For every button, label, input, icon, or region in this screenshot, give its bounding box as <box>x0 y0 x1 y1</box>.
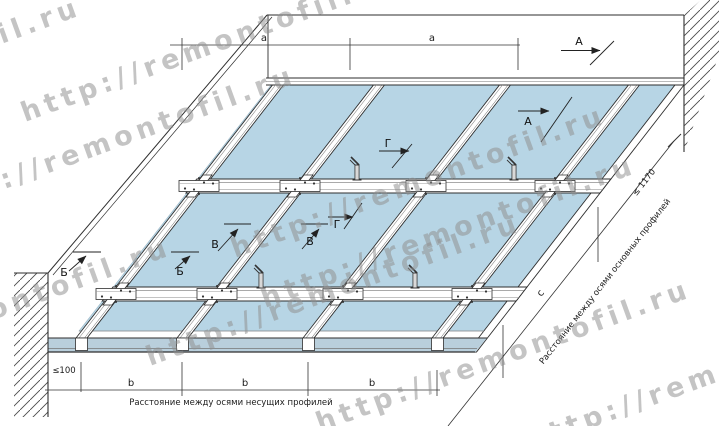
svg-text:В: В <box>211 238 219 251</box>
dim-label-offset-100: ≤100 <box>52 366 75 376</box>
wall-angle-profile <box>266 78 684 85</box>
dim-label-b-2: b <box>242 378 248 389</box>
right-wall-section <box>684 0 719 152</box>
dim-label-a-2: a <box>429 33 435 44</box>
dim-bottom-caption: Расстояние между осями несущих профилей <box>129 398 332 408</box>
front-edge-band <box>48 338 487 352</box>
ceiling-frame-diagram: a a ≤100 b b b Расстояние между осями не… <box>0 0 719 426</box>
dim-label-b-1: b <box>128 378 134 389</box>
section-marker-a-top: А <box>561 35 614 65</box>
diagram-canvas: a a ≤100 b b b Расстояние между осями не… <box>0 0 719 426</box>
watermark-layer: http://remontofil.ru http://remontofil.r… <box>0 0 719 426</box>
dim-label-c: c <box>535 288 547 299</box>
svg-text:Б: Б <box>176 265 184 278</box>
svg-text:Г: Г <box>385 137 392 150</box>
svg-text:А: А <box>575 35 583 48</box>
